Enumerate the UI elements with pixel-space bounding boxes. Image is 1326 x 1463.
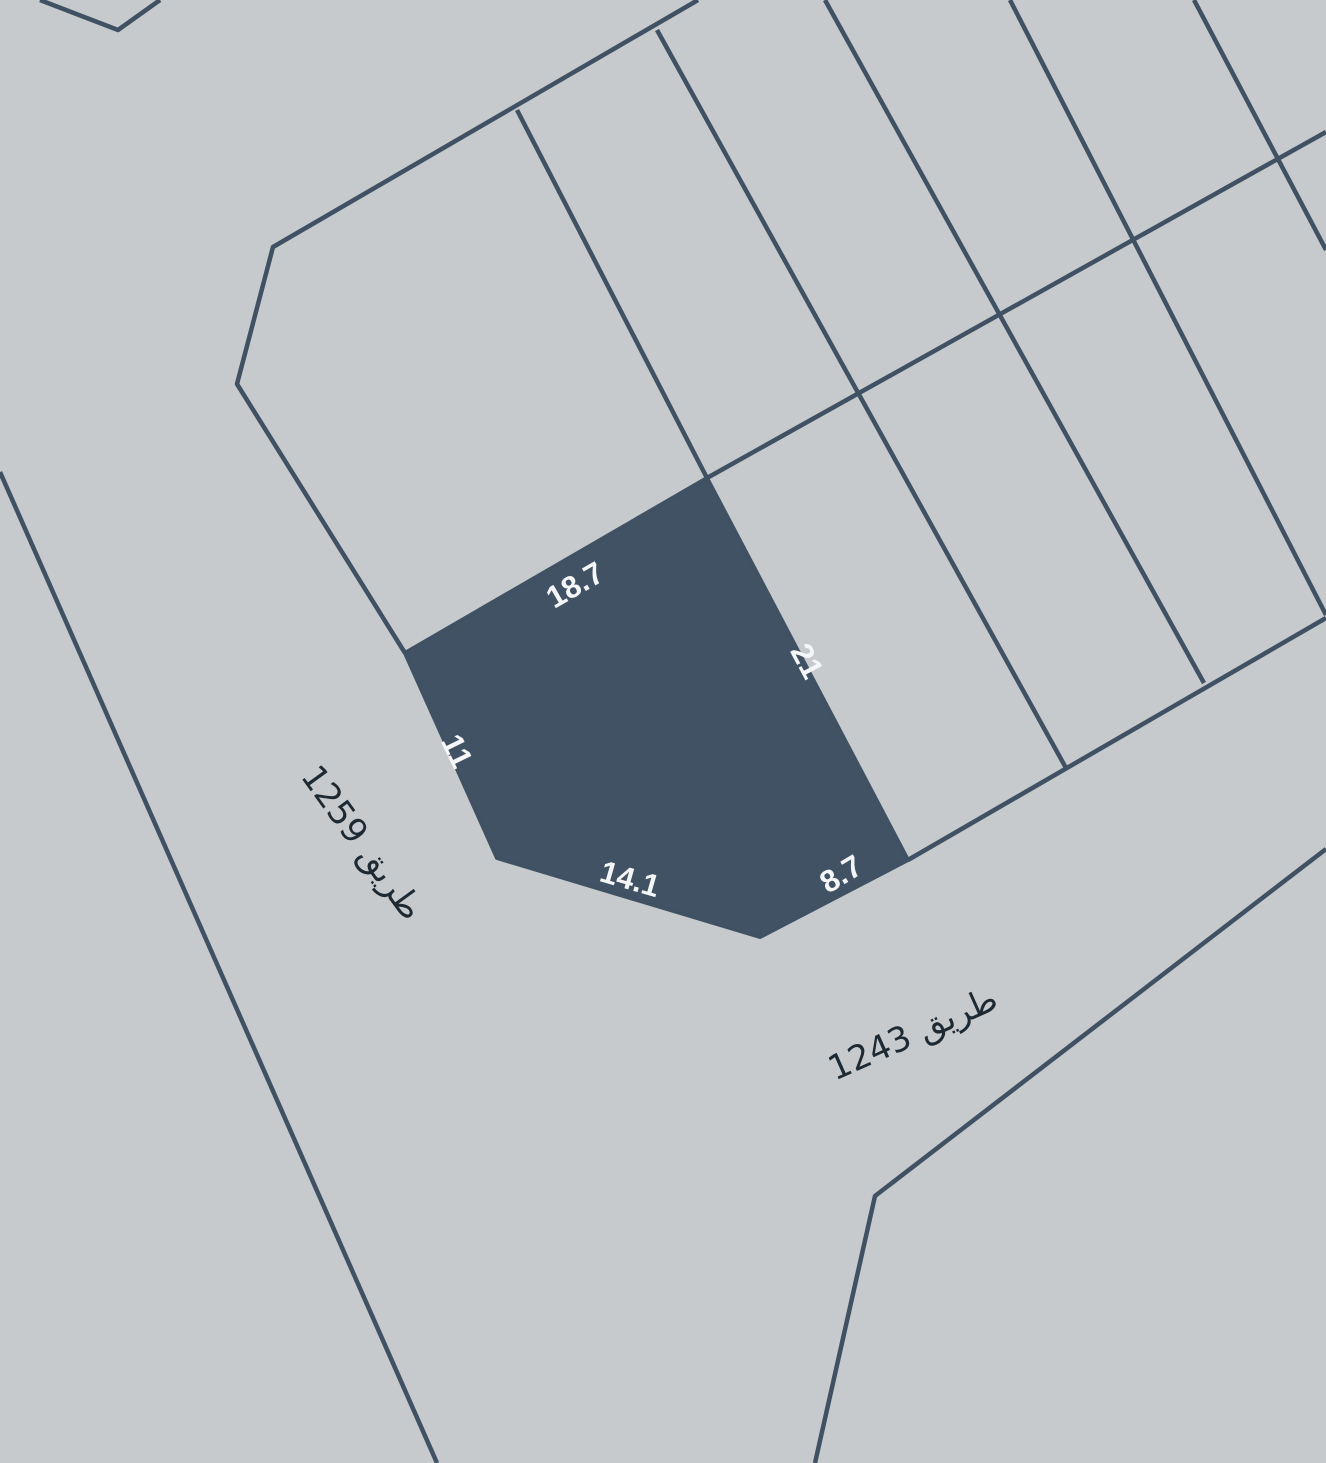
cadastral-map[interactable]: 18.7 21 11 14.1 8.7 طريق 1259 طريق 1243 (0, 0, 1326, 1463)
map-viewport: 18.7 21 11 14.1 8.7 طريق 1259 طريق 1243 (0, 0, 1326, 1463)
